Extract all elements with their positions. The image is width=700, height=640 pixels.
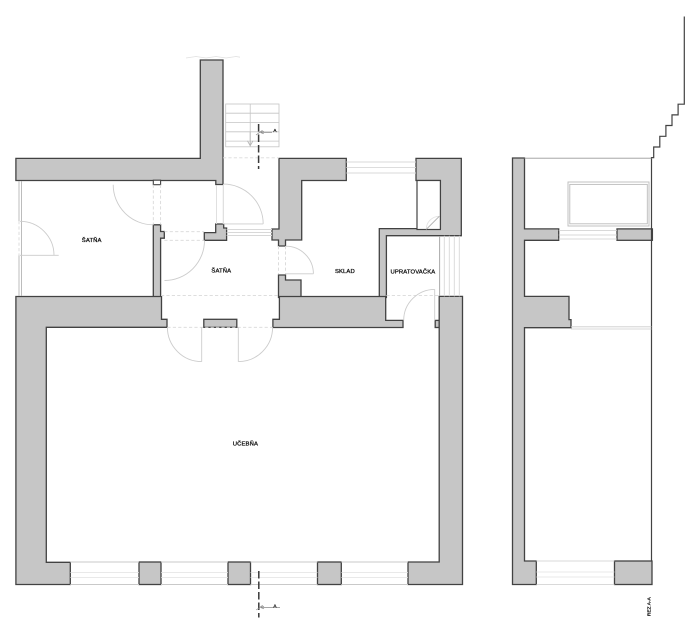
svg-text:REZ A-A: REZ A-A	[647, 596, 652, 616]
svg-text:UPRATOVAČKA: UPRATOVAČKA	[390, 268, 435, 275]
svg-text:SKLAD: SKLAD	[335, 269, 355, 275]
svg-text:UČEBŇA: UČEBŇA	[233, 440, 258, 447]
svg-text:ŠATŇA: ŠATŇA	[211, 268, 231, 275]
svg-text:ŠATŇA: ŠATŇA	[82, 237, 102, 244]
